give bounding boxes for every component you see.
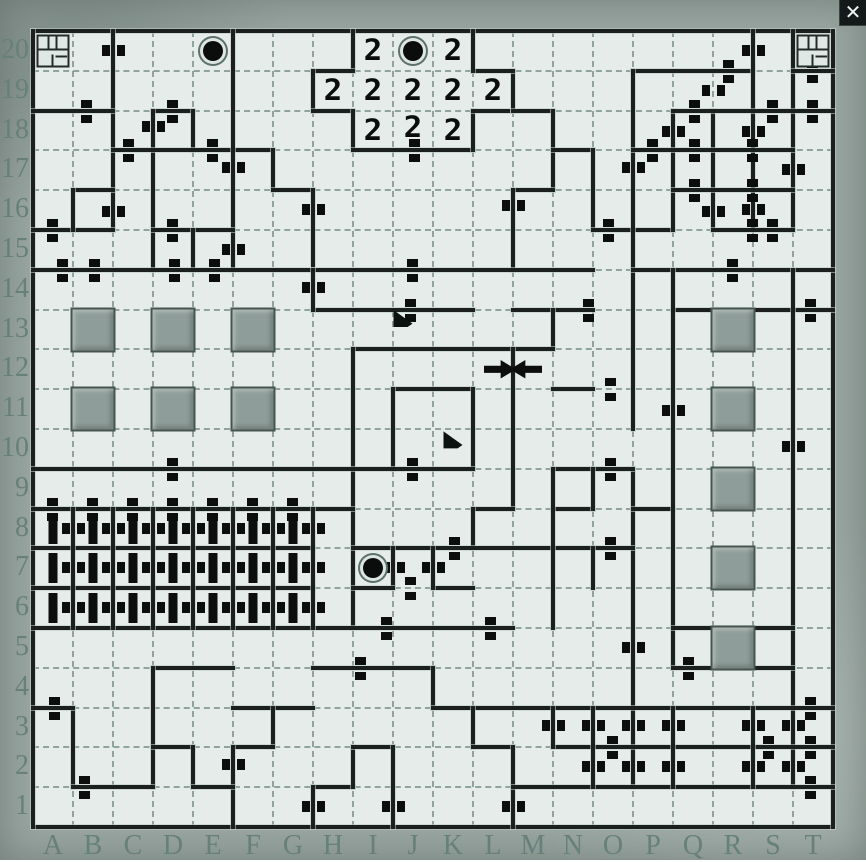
map-wall: [391, 546, 395, 590]
map-wall: [551, 148, 595, 152]
pillar-icon: [231, 387, 276, 432]
pillar-icon: [151, 387, 196, 432]
close-button[interactable]: ✕: [839, 0, 866, 26]
row-label: 8: [0, 512, 29, 544]
two-icon: 2: [364, 116, 383, 145]
pillar-icon: [711, 546, 756, 591]
map-wall: [551, 706, 555, 750]
map-wall: [471, 387, 475, 471]
two-icon: 2: [364, 76, 383, 105]
map-wall: [631, 148, 795, 152]
bar-icon: [169, 514, 178, 544]
bar-icon: [169, 593, 178, 623]
map-wall: [751, 706, 755, 790]
map-wall: [71, 507, 75, 630]
row-label: 16: [0, 193, 29, 225]
map-wall: [591, 148, 595, 232]
map-wall: [311, 69, 355, 73]
map-wall: [351, 586, 395, 590]
bar-icon: [49, 553, 58, 583]
map-wall: [231, 29, 235, 272]
map-wall: [631, 268, 835, 272]
column-label: N: [553, 830, 593, 862]
stairs-icon: [797, 34, 830, 67]
map-wall: [711, 109, 715, 232]
map-wall: [151, 109, 155, 272]
row-label: 7: [0, 551, 29, 583]
two-icon: 2: [444, 116, 463, 145]
map-wall: [591, 546, 595, 590]
map-wall: [311, 69, 315, 113]
map-wall: [231, 507, 235, 630]
map-wall: [191, 507, 195, 630]
map-wall: [191, 228, 195, 272]
column-label: R: [713, 830, 753, 862]
map-wall: [311, 666, 435, 670]
map-wall: [551, 507, 595, 511]
map-wall: [591, 467, 595, 511]
bar-icon: [209, 553, 218, 583]
column-label: I: [353, 830, 393, 862]
map-wall: [671, 109, 675, 232]
portal-icon: [403, 41, 423, 61]
map-wall: [271, 706, 275, 750]
two-icon: 2: [444, 36, 463, 65]
map-wall: [311, 785, 355, 789]
map-wall: [471, 29, 475, 73]
map-wall: [791, 268, 795, 789]
map-wall: [511, 69, 515, 113]
close-icon[interactable]: ✕: [845, 0, 862, 24]
map-wall: [151, 507, 155, 630]
map-wall: [351, 745, 395, 749]
bar-icon: [49, 514, 58, 544]
row-label: 3: [0, 711, 29, 743]
map-wall: [551, 308, 555, 352]
map-overlay: 2222222222ABCDEFGHIJKLMNOPQRST2019181716…: [0, 0, 866, 860]
map-wall: [31, 109, 115, 113]
map-wall: [511, 188, 555, 192]
map-wall: [71, 188, 115, 192]
row-label: 18: [0, 114, 29, 146]
map-wall: [71, 785, 155, 789]
map-wall: [351, 347, 555, 351]
column-label: F: [233, 830, 273, 862]
map-wall: [631, 467, 635, 789]
map-wall: [551, 467, 555, 630]
column-label: T: [793, 830, 833, 862]
map-wall: [471, 69, 515, 73]
row-label: 13: [0, 313, 29, 345]
bar-icon: [129, 593, 138, 623]
two-icon: 2: [444, 76, 463, 105]
map-wall: [671, 706, 675, 790]
bar-icon: [169, 553, 178, 583]
flag-icon: [444, 431, 463, 448]
stairs-icon: [37, 34, 70, 67]
map-wall: [791, 29, 795, 232]
map-wall: [151, 109, 195, 113]
column-label: S: [753, 830, 793, 862]
map-wall: [311, 507, 315, 630]
column-label: H: [313, 830, 353, 862]
map-wall: [311, 109, 355, 113]
column-label: Q: [673, 830, 713, 862]
pillar-icon: [711, 625, 756, 670]
map-wall: [391, 387, 475, 391]
map-wall: [391, 387, 395, 471]
map-wall: [591, 706, 595, 790]
column-label: J: [393, 830, 433, 862]
map-wall: [471, 706, 475, 750]
row-label: 20: [0, 34, 29, 66]
map-wall: [71, 188, 75, 232]
map-wall: [631, 507, 675, 511]
map-wall: [231, 745, 275, 749]
row-label: 17: [0, 153, 29, 185]
bar-icon: [249, 514, 258, 544]
column-label: A: [33, 830, 73, 862]
map-wall: [431, 586, 475, 590]
map-wall: [471, 109, 515, 113]
map-wall: [191, 745, 195, 789]
column-label: D: [153, 830, 193, 862]
bar-icon: [89, 553, 98, 583]
column-label: M: [513, 830, 553, 862]
row-label: 19: [0, 74, 29, 106]
map-wall: [431, 706, 835, 710]
column-label: E: [193, 830, 233, 862]
map-wall: [31, 706, 75, 710]
map-wall: [711, 228, 795, 232]
pillar-icon: [231, 307, 276, 352]
map-wall: [31, 29, 835, 33]
map-wall: [351, 148, 475, 152]
map-wall: [311, 785, 315, 829]
portal-icon: [203, 41, 223, 61]
column-label: L: [473, 830, 513, 862]
map-wall: [151, 745, 195, 749]
column-label: K: [433, 830, 473, 862]
bar-icon: [289, 514, 298, 544]
bar-icon: [249, 553, 258, 583]
map-wall: [671, 109, 835, 113]
map-wall: [791, 69, 835, 73]
bar-icon: [129, 553, 138, 583]
map-wall: [471, 507, 515, 511]
two-icon: 2: [324, 76, 343, 105]
map-wall: [631, 69, 755, 73]
map-wall: [471, 507, 475, 551]
map-wall: [111, 29, 115, 232]
portal-icon: [363, 558, 383, 578]
bar-icon: [289, 553, 298, 583]
two-icon: 2: [404, 76, 423, 105]
map-wall: [31, 825, 835, 829]
map-wall: [311, 308, 475, 312]
row-label: 15: [0, 233, 29, 265]
bar-icon: [209, 514, 218, 544]
row-label: 2: [0, 750, 29, 782]
column-label: P: [633, 830, 673, 862]
bar-icon: [89, 593, 98, 623]
map-wall: [111, 148, 275, 152]
map-wall: [471, 109, 475, 153]
map-wall: [71, 706, 75, 790]
row-label: 9: [0, 472, 29, 504]
bar-icon: [49, 593, 58, 623]
map-wall: [671, 268, 675, 670]
map-wall: [271, 148, 275, 192]
map-wall: [431, 546, 435, 590]
bar-icon: [209, 593, 218, 623]
pillar-icon: [151, 307, 196, 352]
map-wall: [271, 188, 315, 192]
bar-icon: [289, 593, 298, 623]
column-label: O: [593, 830, 633, 862]
column-label: C: [113, 830, 153, 862]
two-icon: 2: [404, 113, 423, 142]
map-wall: [151, 666, 155, 789]
bar-icon: [249, 593, 258, 623]
map-wall: [551, 387, 595, 391]
map-wall: [351, 745, 355, 789]
map-wall: [111, 507, 115, 630]
column-label: G: [273, 830, 313, 862]
map-frame: 2222222222ABCDEFGHIJKLMNOPQRST2019181716…: [0, 0, 866, 860]
map-wall: [511, 188, 515, 272]
map-wall: [631, 69, 635, 431]
pillar-icon: [71, 387, 116, 432]
row-label: 4: [0, 671, 29, 703]
pillar-icon: [711, 387, 756, 432]
map-wall: [471, 745, 515, 749]
row-label: 12: [0, 352, 29, 384]
row-label: 1: [0, 790, 29, 822]
map-wall: [351, 109, 355, 153]
column-label: B: [73, 830, 113, 862]
row-label: 5: [0, 631, 29, 663]
pillar-icon: [711, 466, 756, 511]
two-icon: 2: [364, 36, 383, 65]
map-wall: [31, 467, 475, 471]
pillar-icon: [711, 307, 756, 352]
bar-icon: [129, 514, 138, 544]
map-wall: [311, 188, 315, 272]
map-wall: [311, 268, 315, 312]
bar-icon: [89, 514, 98, 544]
map-wall: [431, 666, 435, 710]
map-wall: [391, 745, 395, 829]
map-wall: [671, 188, 795, 192]
row-label: 11: [0, 392, 29, 424]
row-label: 10: [0, 432, 29, 464]
map-wall: [191, 109, 195, 153]
map-wall: [191, 785, 235, 789]
row-label: 6: [0, 591, 29, 623]
map-wall: [271, 507, 275, 630]
map-wall: [511, 109, 555, 113]
row-label: 14: [0, 273, 29, 305]
two-icon: 2: [484, 76, 503, 105]
map-wall: [351, 29, 355, 73]
pillar-icon: [71, 307, 116, 352]
map-wall: [151, 666, 235, 670]
